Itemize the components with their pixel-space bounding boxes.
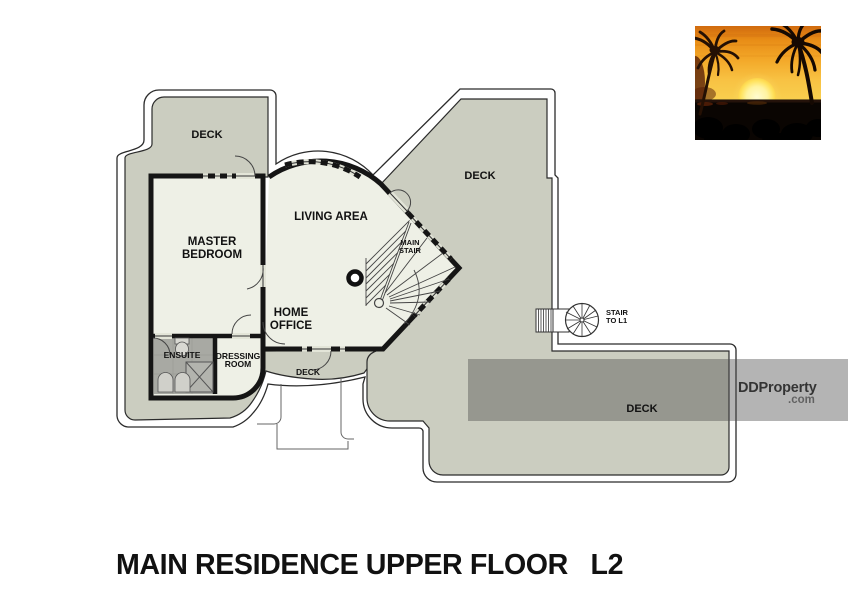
svg-text:DECK: DECK — [464, 170, 495, 182]
svg-text:DECK: DECK — [191, 129, 222, 141]
svg-text:TO L1: TO L1 — [606, 316, 627, 325]
svg-text:OFFICE: OFFICE — [270, 320, 312, 332]
svg-text:.com: .com — [788, 394, 815, 406]
svg-text:ROOM: ROOM — [225, 359, 251, 369]
svg-text:DECK: DECK — [296, 367, 321, 377]
svg-text:HOME: HOME — [274, 307, 309, 319]
svg-text:LIVING AREA: LIVING AREA — [294, 211, 368, 223]
svg-text:BEDROOM: BEDROOM — [182, 249, 242, 261]
svg-text:STAIR: STAIR — [399, 246, 422, 255]
svg-text:MAIN RESIDENCE UPPER FLOOR L: MAIN RESIDENCE UPPER FLOOR L2 — [116, 549, 623, 581]
svg-text:DECK: DECK — [626, 403, 657, 415]
svg-text:ENSUITE: ENSUITE — [164, 350, 201, 360]
svg-text:MASTER: MASTER — [188, 236, 237, 248]
